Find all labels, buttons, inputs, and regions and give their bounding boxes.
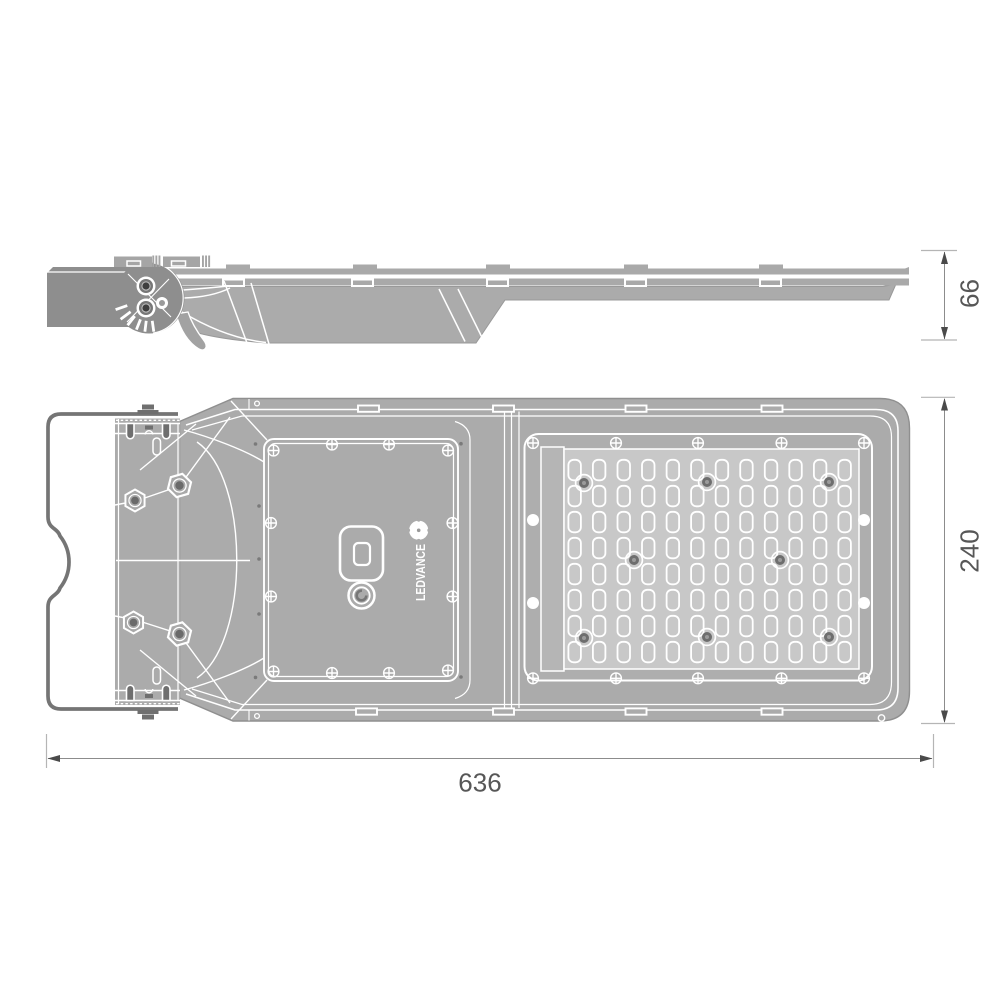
svg-text:240: 240	[955, 529, 985, 572]
svg-text:636: 636	[458, 768, 501, 798]
svg-text:66: 66	[955, 279, 985, 308]
svg-text:LEDVANCE: LEDVANCE	[413, 544, 428, 601]
